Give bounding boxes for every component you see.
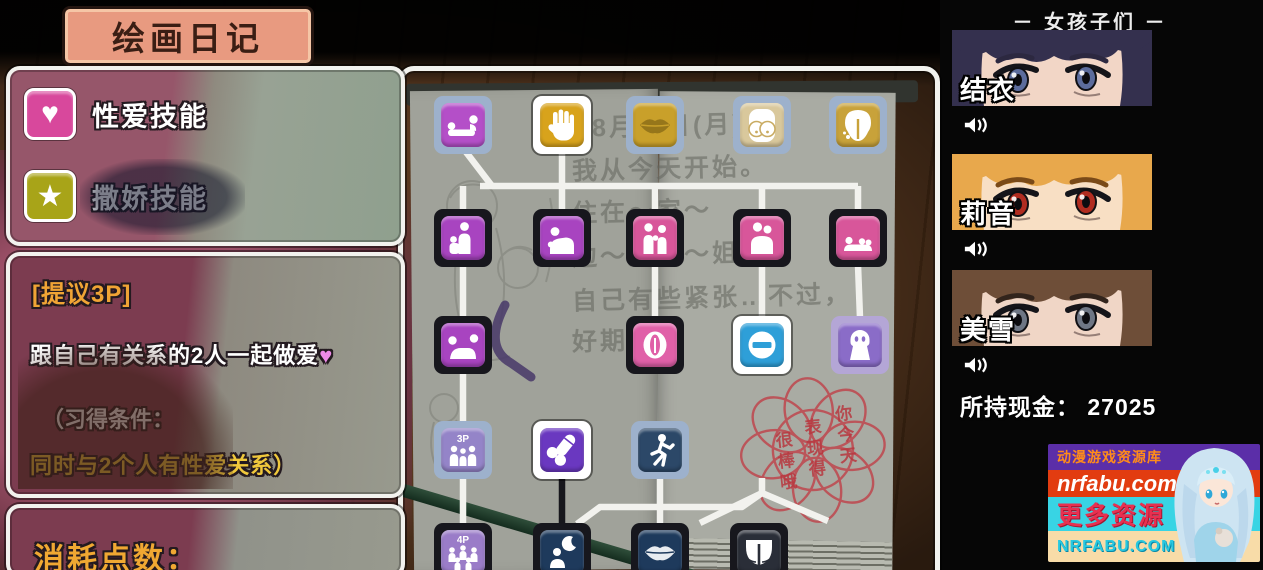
page-title-box: 绘画日记 — [62, 6, 314, 66]
skill-icon-foursome-4p[interactable]: 4P — [434, 523, 492, 570]
vulva-icon — [635, 325, 675, 365]
skill-icon-lying-pose[interactable] — [434, 96, 492, 154]
skill-icon-ghost[interactable] — [831, 316, 889, 374]
skill-category-panel: ♥ 性爱技能 ★ 撒娇技能 — [6, 66, 405, 246]
girl-name: 美雪 — [960, 310, 1016, 346]
points-panel: 消耗点数： — [6, 504, 405, 570]
skill-category-sex[interactable]: ♥ 性爱技能 — [24, 88, 208, 140]
girl-name: 结衣 — [960, 70, 1016, 106]
skill-icon-lips[interactable] — [626, 96, 684, 154]
threesome-3p-icon: 3P — [443, 430, 483, 470]
kneeling-pose-icon — [542, 218, 582, 258]
girl-name: 莉音 — [960, 194, 1016, 230]
svg-text:4P: 4P — [457, 535, 470, 546]
lips-icon — [635, 105, 675, 145]
heart-icon: ♥ — [24, 88, 76, 140]
heart-glyph: ♥ — [319, 343, 333, 368]
skill-category-label: 性爱技能 — [92, 95, 208, 134]
skill-icon-resting-pose[interactable] — [829, 209, 887, 267]
breasts-icon — [742, 105, 782, 145]
hips-night-icon — [739, 532, 779, 570]
skill-icon-hand[interactable] — [533, 96, 591, 154]
hand-icon — [542, 105, 582, 145]
locked-icon — [742, 325, 782, 365]
skill-category-label: 撒娇技能 — [92, 177, 208, 216]
skill-icon-standing-pair[interactable] — [626, 209, 684, 267]
voice-icon[interactable] — [962, 356, 996, 374]
watermark-banner: 动漫游戏资源库 nrfabu.com 更多资源 NRFABU.COM — [1048, 444, 1260, 562]
points-label: 消耗点数： — [34, 534, 199, 570]
praise-stamp: 你今天 表现得 很棒哦 — [728, 368, 899, 533]
voice-icon[interactable] — [962, 240, 996, 258]
penis-icon — [542, 430, 582, 470]
skill-category-charm[interactable]: ★ 撒娇技能 — [24, 170, 208, 222]
sitting-pose-icon — [443, 218, 483, 258]
cash-label: 所持现金： — [960, 394, 1080, 420]
voice-icon[interactable] — [962, 116, 996, 134]
hips-icon — [838, 105, 878, 145]
skill-icon-lips-night[interactable] — [631, 523, 689, 570]
game-screen: 8月～日(月)～我从今天开始。住在～家～边～是我～姐姐自己有些紧张…不过，好期待… — [0, 0, 1263, 570]
girl-portrait-2[interactable]: 莉音 — [952, 154, 1152, 230]
skill-name: [提议3P] — [32, 274, 131, 309]
skill-icon-threesome-3p[interactable]: 3P — [434, 421, 492, 479]
foursome-4p-icon: 4P — [443, 532, 483, 570]
skill-icon-doggy-pose[interactable] — [434, 316, 492, 374]
girl-portrait-1[interactable]: 结衣 — [952, 30, 1152, 106]
skill-icon-penis[interactable] — [533, 421, 591, 479]
skill-icon-kneeling-pose[interactable] — [533, 209, 591, 267]
cash-value: 27025 — [1087, 394, 1156, 420]
girl-portrait-3[interactable]: 美雪 — [952, 270, 1152, 346]
skill-icon-breasts[interactable] — [733, 96, 791, 154]
embrace-icon — [742, 218, 782, 258]
star-icon: ★ — [24, 170, 76, 222]
condition-text: 同时与2个人有性爱关系） — [30, 448, 296, 480]
skill-icon-locked[interactable] — [733, 316, 791, 374]
skill-detail-panel: [提议3P] 跟自己有关系的2人一起做爱♥ （习得条件： 同时与2个人有性爱关系… — [6, 252, 405, 498]
cash-line: 所持现金： 27025 — [960, 388, 1156, 422]
skill-icon-sitting-pose[interactable] — [434, 209, 492, 267]
night-visit-icon — [542, 532, 582, 570]
skill-icon-night-visit[interactable] — [533, 523, 591, 570]
skill-icon-hips[interactable] — [829, 96, 887, 154]
condition-intro: （习得条件： — [42, 402, 174, 434]
skill-description: 跟自己有关系的2人一起做爱♥ — [30, 338, 333, 370]
doggy-pose-icon — [443, 325, 483, 365]
diary-line: 自己有些紧张…不过， — [572, 274, 853, 317]
svg-text:3P: 3P — [457, 434, 470, 445]
skill-icon-embrace[interactable] — [733, 209, 791, 267]
ghost-icon — [840, 325, 880, 365]
lips-night-icon — [640, 532, 680, 570]
skill-icon-stamina[interactable] — [631, 421, 689, 479]
page-title: 绘画日记 — [112, 12, 264, 60]
skill-icon-vulva[interactable] — [626, 316, 684, 374]
watermark-mascot — [1164, 444, 1260, 562]
skill-icon-hips-night[interactable] — [730, 523, 788, 570]
stamina-icon — [640, 430, 680, 470]
standing-pair-icon — [635, 218, 675, 258]
resting-pose-icon — [838, 218, 878, 258]
lying-pose-icon — [443, 105, 483, 145]
